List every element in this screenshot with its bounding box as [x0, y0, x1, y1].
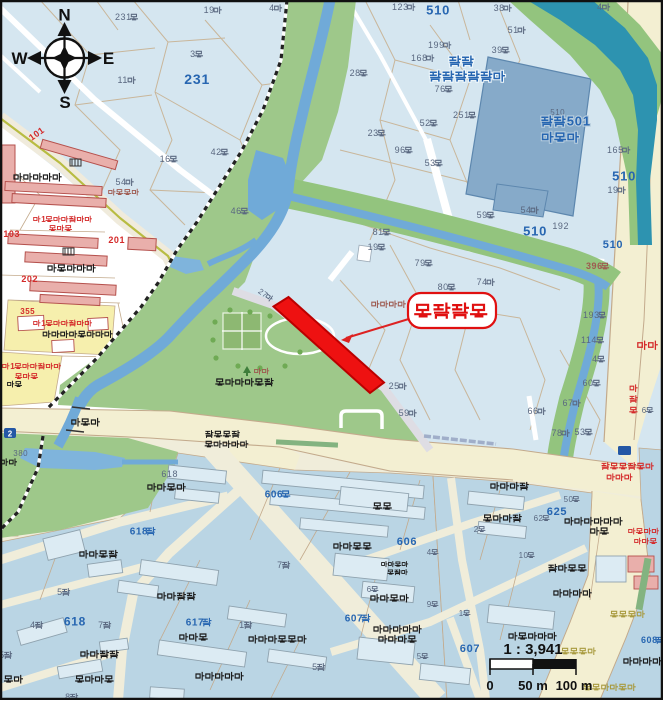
svg-text:608: 608	[641, 635, 658, 645]
svg-text:606: 606	[397, 536, 417, 548]
svg-text:231: 231	[184, 71, 210, 87]
svg-text:618: 618	[64, 614, 86, 628]
svg-text:N: N	[58, 6, 70, 25]
svg-text:76: 76	[435, 84, 446, 94]
svg-text:618: 618	[130, 527, 149, 538]
svg-text:19: 19	[608, 185, 619, 195]
svg-text:625: 625	[547, 506, 567, 518]
svg-text:380: 380	[13, 449, 28, 458]
svg-text:396: 396	[586, 261, 603, 271]
svg-text:59: 59	[399, 408, 410, 418]
svg-text:11: 11	[118, 75, 128, 85]
svg-text:510: 510	[523, 224, 547, 239]
svg-text:355: 355	[20, 307, 35, 316]
svg-text:19: 19	[368, 242, 379, 252]
svg-text:199: 199	[428, 40, 445, 50]
svg-text:510: 510	[612, 169, 636, 184]
svg-text:1: 1	[239, 620, 245, 630]
svg-text:9: 9	[427, 600, 432, 609]
svg-text:607: 607	[345, 614, 364, 625]
svg-text:62: 62	[534, 514, 544, 523]
svg-text:606: 606	[265, 490, 284, 501]
svg-text:5: 5	[417, 652, 422, 661]
svg-text:59: 59	[477, 210, 488, 220]
svg-text:96: 96	[395, 145, 406, 155]
svg-text:7: 7	[98, 620, 104, 630]
svg-text:202: 202	[21, 274, 38, 284]
svg-text:W: W	[11, 49, 28, 68]
svg-text:251: 251	[453, 110, 470, 120]
svg-text:100 m: 100 m	[556, 678, 593, 693]
svg-text:1: 1	[10, 362, 15, 371]
svg-text:103: 103	[3, 229, 20, 239]
svg-text:38: 38	[494, 3, 505, 13]
svg-text:5: 5	[57, 587, 63, 597]
svg-text:165: 165	[607, 145, 624, 155]
svg-text:1: 1	[41, 319, 46, 328]
svg-text:5: 5	[312, 662, 318, 672]
svg-text:80: 80	[438, 282, 449, 292]
svg-text:74: 74	[477, 277, 488, 287]
svg-text:4: 4	[427, 548, 432, 557]
svg-text:42: 42	[211, 147, 222, 157]
svg-text:66: 66	[528, 406, 539, 416]
svg-text:510: 510	[603, 239, 623, 251]
svg-text:193: 193	[583, 310, 600, 320]
svg-text:60: 60	[583, 378, 594, 388]
svg-text:16: 16	[160, 154, 171, 164]
svg-text:4: 4	[597, 2, 603, 12]
svg-text:192: 192	[552, 221, 569, 231]
svg-text:79: 79	[415, 258, 426, 268]
svg-text:S: S	[59, 93, 70, 112]
svg-text:4: 4	[592, 354, 598, 364]
svg-text:7: 7	[277, 560, 283, 570]
svg-text:618: 618	[161, 469, 178, 479]
svg-text:53: 53	[575, 427, 586, 437]
svg-text:1: 1	[41, 215, 46, 224]
svg-text:510: 510	[426, 3, 450, 18]
svg-text:501: 501	[567, 114, 591, 129]
svg-text:617: 617	[186, 618, 205, 629]
svg-text:25: 25	[389, 381, 400, 391]
svg-text:1 : 3,941: 1 : 3,941	[503, 641, 562, 658]
svg-text:52: 52	[420, 118, 431, 128]
svg-text:0: 0	[486, 678, 493, 693]
svg-text:6: 6	[642, 406, 647, 415]
svg-text:51: 51	[508, 25, 519, 35]
svg-text:54: 54	[521, 205, 532, 215]
svg-text:114: 114	[581, 335, 597, 345]
svg-text:2: 2	[474, 525, 479, 534]
svg-text:4: 4	[269, 3, 275, 13]
svg-text:201: 201	[108, 235, 125, 245]
svg-text:78: 78	[552, 428, 563, 438]
svg-text:E: E	[103, 49, 114, 68]
svg-text:50 m: 50 m	[518, 678, 548, 693]
svg-text:50: 50	[564, 495, 574, 504]
svg-text:231: 231	[115, 12, 132, 22]
svg-text:10: 10	[519, 551, 529, 560]
svg-text:19: 19	[204, 5, 215, 15]
svg-text:23: 23	[368, 128, 379, 138]
svg-text:81: 81	[373, 227, 384, 237]
svg-text:54: 54	[116, 177, 127, 187]
svg-text:123: 123	[392, 2, 409, 12]
svg-text:4: 4	[30, 620, 36, 630]
svg-text:3: 3	[190, 49, 196, 59]
svg-text:1: 1	[459, 609, 464, 618]
svg-text:6: 6	[367, 585, 372, 594]
svg-text:2: 2	[8, 430, 13, 439]
svg-text:168: 168	[411, 53, 428, 63]
svg-text:607: 607	[460, 643, 480, 655]
svg-text:46: 46	[231, 206, 242, 216]
svg-text:39: 39	[492, 45, 503, 55]
svg-text:53: 53	[425, 158, 436, 168]
svg-text:28: 28	[350, 68, 361, 78]
svg-text:67: 67	[563, 398, 574, 408]
